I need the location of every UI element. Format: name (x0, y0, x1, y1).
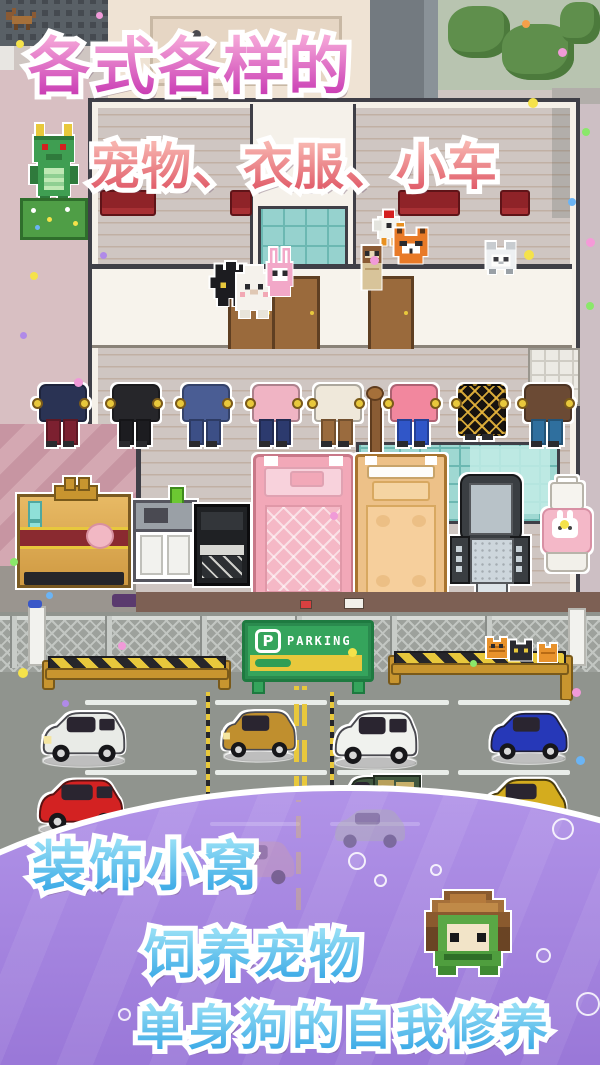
pet-green-dragon (26, 124, 82, 206)
gate-pillar-left (28, 606, 46, 666)
clothing-item (33, 382, 89, 452)
flower-bed (20, 198, 88, 240)
confetti-dot (576, 756, 585, 765)
clothing-item (518, 382, 574, 452)
furniture-pink-bed (253, 454, 354, 606)
headline-sub: 宠物、衣服、小车 宠物、衣服、小车 (90, 142, 498, 192)
clothing-item (384, 382, 440, 452)
confetti-dot (118, 642, 126, 650)
screenshot-root: 各式各样的 各式各样的 宠物、衣服、小车 宠物、衣服、小车 (0, 0, 600, 1065)
pet-pink-rabbit (262, 248, 298, 296)
car-gold-suv (218, 705, 300, 771)
confetti-dot (586, 238, 595, 247)
bubble (576, 992, 600, 1016)
bubble (536, 948, 551, 963)
confetti-dot (10, 558, 18, 566)
headline-raise-pets: 饲养宠物 饲养宠物 (144, 930, 364, 982)
furniture-rabbit-stool (540, 482, 592, 586)
pet-brown-ferret (360, 246, 384, 292)
confetti-dot (330, 512, 338, 520)
faint-stall-line (210, 822, 300, 826)
confetti-dot (560, 520, 569, 529)
confetti-dot (16, 40, 24, 48)
stall-line (337, 700, 449, 705)
parked-car-roof (112, 594, 138, 607)
confetti-dot (370, 256, 379, 265)
stall-line (85, 700, 197, 705)
confetti-dot (558, 48, 567, 57)
clothing-item (246, 382, 302, 452)
confetti-dot (100, 252, 107, 259)
car-white-van (38, 708, 130, 772)
parking-sign-label: PARKING (287, 634, 352, 648)
furniture-tan-bed (355, 454, 447, 608)
car-ghost-gray (330, 806, 410, 852)
confetti-dot (528, 98, 538, 108)
confetti-dot (96, 12, 103, 19)
confetti-dot (62, 700, 69, 707)
confetti-dot (348, 648, 357, 657)
interior-wall-face (92, 269, 572, 348)
stall-line (458, 700, 570, 705)
car-white-minivan (330, 710, 422, 774)
confetti-dot (470, 660, 477, 667)
parking-p-badge: P (255, 629, 281, 653)
pillar-cap (28, 600, 42, 608)
headline-decorate: 装饰小窝 装饰小窝 (32, 840, 260, 894)
headline-raise-pets-fill: 饲养宠物 (144, 926, 364, 986)
confetti-dot (568, 198, 576, 206)
furniture-buffet-counter (17, 494, 131, 588)
barrier-rail-right (391, 663, 569, 675)
coat-rack (370, 392, 382, 454)
furniture-massage-chair (450, 474, 530, 602)
pet-orange-cat-2 (537, 644, 559, 664)
furniture-stove (194, 504, 250, 586)
headline-top-fill: 各式各样的 (28, 30, 353, 103)
furniture-kitchen-sink (133, 500, 197, 582)
gray-tower (370, 0, 438, 104)
coat-rack-top (366, 386, 384, 401)
bubble (374, 874, 387, 887)
confetti-dot (524, 250, 534, 260)
headline-single-dog-fill: 单身狗的自我修养 (136, 1000, 552, 1056)
confetti-dot (586, 302, 594, 310)
bubble (552, 818, 574, 840)
confetti-dot (522, 20, 530, 28)
turtle-mascot (420, 888, 516, 978)
clothing-item (106, 382, 162, 452)
tree (448, 6, 510, 58)
confetti-dot (46, 592, 53, 599)
headline-decorate-fill: 装饰小窝 (32, 835, 260, 898)
bubble (348, 852, 366, 870)
pet-street-dog (6, 8, 36, 30)
confetti-dot (74, 378, 83, 387)
bubble (430, 864, 442, 876)
red-sofa (500, 190, 530, 216)
pet-orange-fox (392, 228, 430, 264)
headline-single-dog: 单身狗的自我修养 单身狗的自我修养 (136, 1004, 552, 1052)
confetti-dot (572, 688, 581, 697)
pet-dark-cat (508, 640, 534, 663)
clothing-item (308, 382, 364, 452)
headline-sub-fill: 宠物、衣服、小车 (90, 138, 498, 196)
bubble (118, 1008, 131, 1021)
sign-green-pill (255, 659, 291, 667)
wall-sign (344, 598, 364, 609)
confetti-dot (20, 332, 27, 339)
clothing-item (176, 382, 232, 452)
pet-white-hamster (484, 242, 518, 274)
clothing-item (452, 382, 508, 452)
confetti-dot (30, 272, 38, 280)
pet-orange-cat (485, 638, 509, 660)
wall-sign-red (300, 600, 312, 609)
headline-top: 各式各样的 各式各样的 (28, 36, 353, 98)
confetti-dot (18, 668, 28, 678)
tree (560, 2, 600, 44)
confetti-dot (582, 128, 590, 136)
fence-post (10, 616, 17, 668)
barrier-rail-left (45, 668, 229, 680)
car-blue-car (486, 706, 572, 772)
